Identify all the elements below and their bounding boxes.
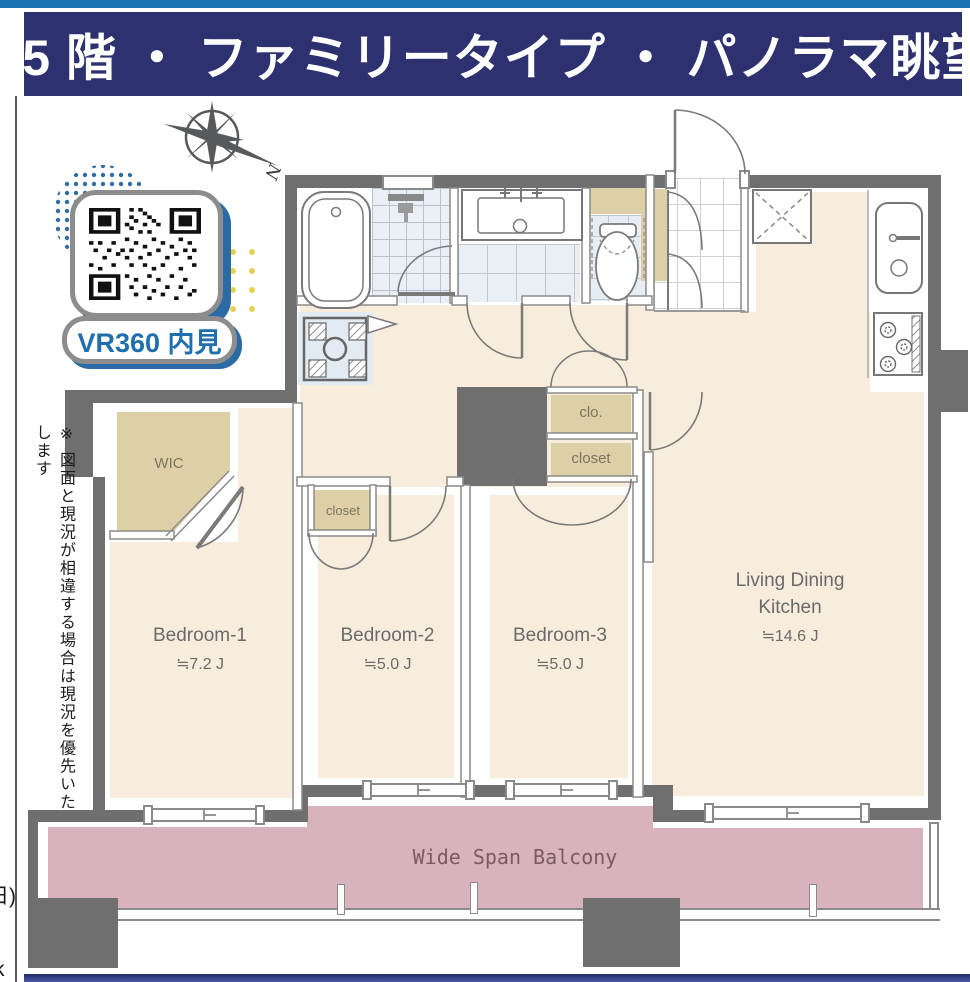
- top-accent-strip: [0, 0, 970, 8]
- entrance-tile-floor: [654, 178, 742, 310]
- wall-top-right: [745, 175, 941, 188]
- left-border-line: [15, 96, 17, 982]
- qr-bubble: [70, 190, 223, 318]
- balcony-rail-right: [929, 822, 939, 910]
- pillar-bottom-center: [583, 898, 680, 967]
- north-label: N: [260, 160, 285, 183]
- page-title-banner: 25 階 ・ ファミリータイプ ・ パノラマ眺望: [24, 12, 962, 96]
- bedroom3-clo-label: clo.: [551, 404, 631, 421]
- ldk-label: Living Dining Kitchen ≒14.6 J: [690, 567, 890, 646]
- balcony-rail-line-2: [28, 919, 940, 921]
- disclaimer-note: ※ 図面と現況が相違する場合は現況を優先いたします: [29, 424, 77, 814]
- balcony-post-3: [809, 884, 817, 917]
- washroom-tile-floor: [458, 244, 580, 302]
- bathroom-tile-floor: [372, 188, 452, 303]
- bottom-accent-bar: [24, 974, 970, 982]
- wall-south-3a: [653, 810, 709, 822]
- wall-left-stub: [28, 810, 38, 905]
- wall-left: [93, 477, 105, 810]
- pillar-right: [928, 350, 968, 412]
- vr-tour-label: VR360 内見: [77, 321, 221, 360]
- bedroom1-floor-upper: [238, 408, 293, 548]
- wall-south-2a: [305, 785, 367, 797]
- wic-label: WIC: [117, 455, 221, 472]
- wall-south-3b: [865, 808, 941, 820]
- wic-area: [117, 412, 230, 533]
- bedroom3-label: Bedroom-3 ≒5.0 J: [490, 622, 630, 674]
- toilet-tile-floor: [588, 215, 646, 301]
- wall-top-left: [288, 175, 668, 188]
- wall-south-2b: [470, 785, 510, 797]
- clipped-letter-fragment: k: [0, 958, 5, 982]
- washer-area-floor: [298, 312, 373, 385]
- balcony-label: Wide Span Balcony: [330, 845, 700, 869]
- toilet-tank: [590, 188, 646, 214]
- kitchen-corridor-floor: [756, 192, 868, 392]
- balcony-left: [48, 827, 307, 908]
- bedroom2-closet-label: closet: [311, 503, 375, 518]
- bedroom1-label: Bedroom-1 ≒7.2 J: [115, 622, 285, 674]
- wall-right: [928, 175, 941, 820]
- vr-tour-label-pill: VR360 内見: [62, 316, 237, 364]
- qr-code: [89, 208, 201, 300]
- clipped-date-fragment: 日): [0, 880, 16, 910]
- balcony-post-1: [337, 884, 345, 915]
- floor-plan-page: 25 階 ・ ファミリータイプ ・ パノラマ眺望 ※ 図面と現況が相違する場合は…: [0, 0, 970, 982]
- balcony-post-2: [470, 882, 478, 914]
- pillar-center: [457, 387, 547, 486]
- balcony-rail-line-1: [28, 908, 940, 910]
- pillar-bottom-left: [28, 898, 118, 968]
- washroom-linen-shelf: [561, 191, 583, 233]
- vr-tour-badge: VR360 内見: [70, 190, 250, 375]
- bedroom2-label: Bedroom-2 ≒5.0 J: [320, 622, 455, 674]
- page-title: 25 階 ・ ファミリータイプ ・ パノラマ眺望: [0, 18, 970, 90]
- wall-bedroom1-top: [65, 390, 297, 403]
- bedroom3-closet-label: closet: [551, 450, 631, 467]
